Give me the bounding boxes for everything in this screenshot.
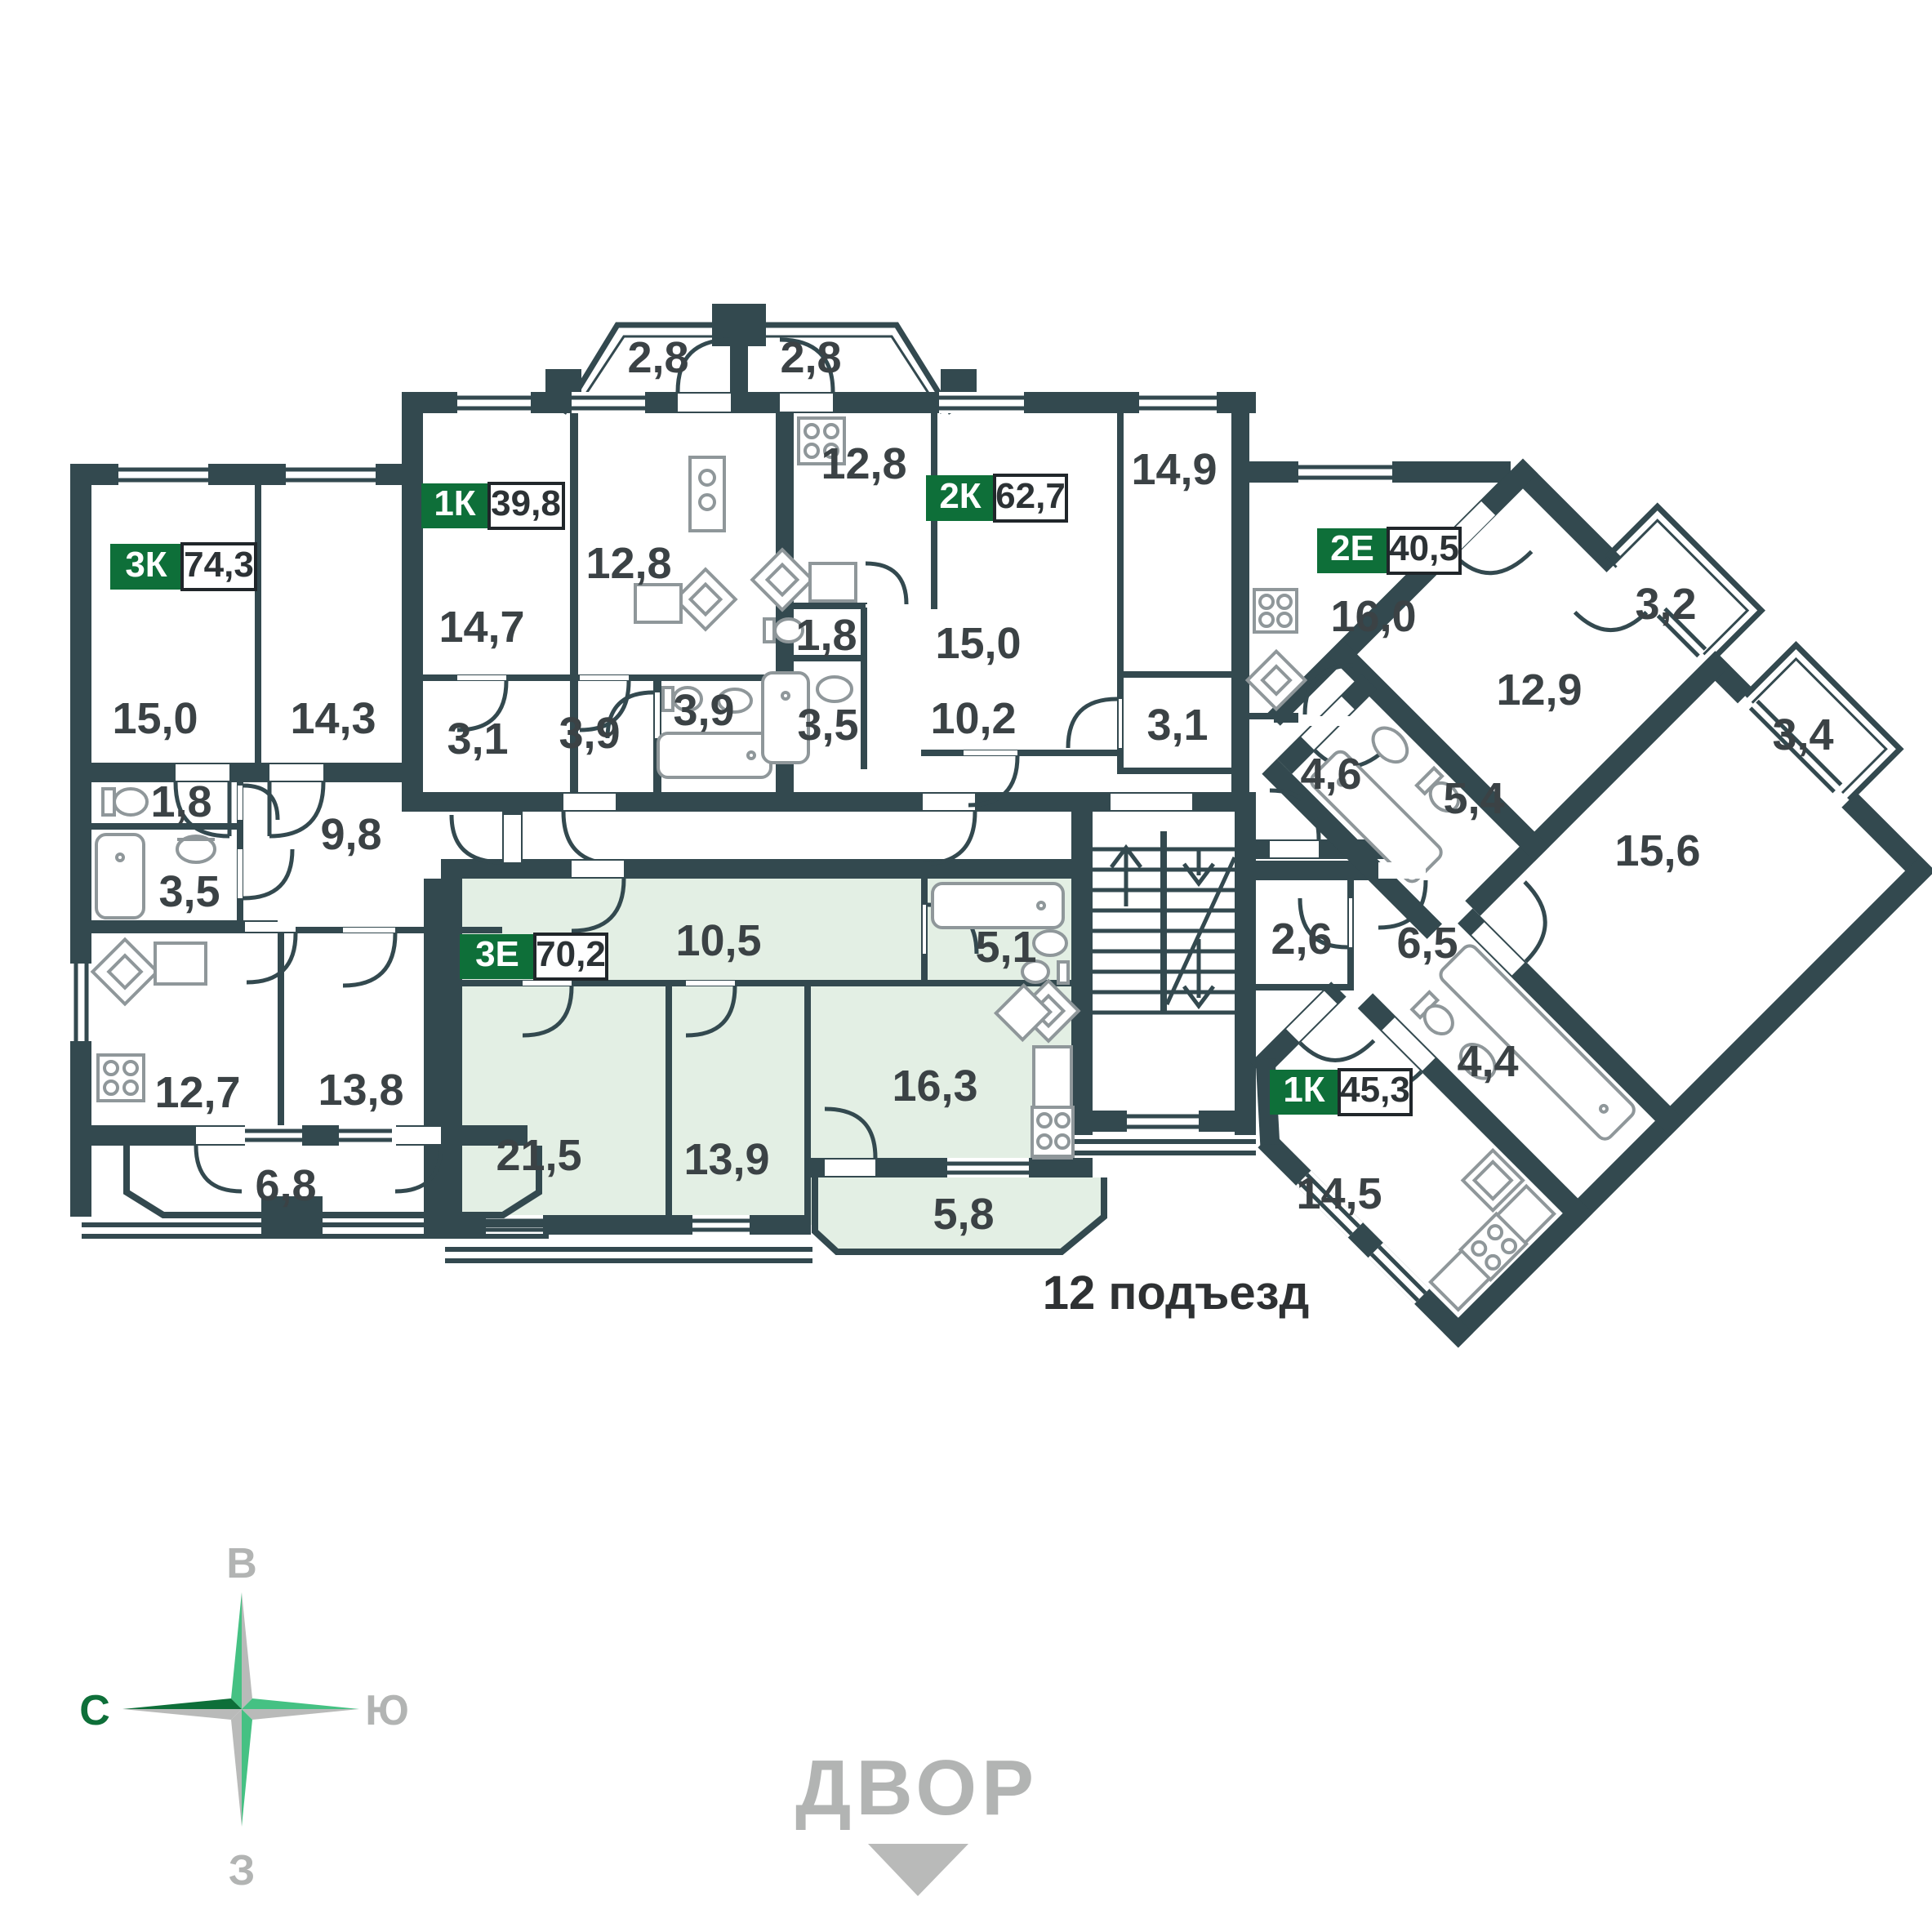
sink-icon [1034, 931, 1066, 955]
room-label: 1,8 [795, 611, 857, 660]
room-label: 5,8 [933, 1190, 994, 1239]
room-label: 3,5 [797, 701, 858, 750]
compass-east-label: В [226, 1540, 257, 1587]
room-label: 9,8 [320, 810, 381, 859]
apartment-area: 40,5 [1389, 528, 1459, 568]
room-label: 12,9 [1496, 666, 1582, 714]
room-label: 12,8 [585, 539, 671, 588]
room-label: 15,0 [935, 619, 1021, 668]
room-label: 5,1 [975, 923, 1036, 972]
room-label: 3,4 [1772, 710, 1833, 759]
apartment-code: 3К [125, 545, 167, 585]
room-label: 12,7 [154, 1068, 240, 1117]
room-label: 2,6 [1271, 915, 1332, 964]
apartment-code: 3Е [475, 934, 519, 974]
apartment-area: 39,8 [491, 483, 561, 523]
courtyard: ДВОР [795, 1744, 1039, 1896]
room-label: 3,9 [559, 709, 620, 758]
apartment-badge-2k[interactable]: 2К 62,7 [926, 475, 1066, 521]
room-label: 21,5 [496, 1131, 581, 1180]
stove-icon [1032, 1107, 1073, 1156]
room-label: 14,5 [1296, 1169, 1382, 1218]
compass-rose: В С Ю З [79, 1540, 409, 1894]
sink-icon [817, 677, 852, 701]
room-label: 5,4 [1443, 774, 1504, 823]
apartment-area: 45,3 [1340, 1070, 1410, 1110]
room-label: 16,0 [1330, 592, 1416, 641]
stove-icon [1254, 590, 1297, 632]
stairs-up-arrow [1111, 848, 1141, 906]
apartment-badge-3k[interactable]: 3К 74,3 [110, 544, 256, 590]
apartment-code: 2К [939, 476, 981, 516]
room-label: 6,8 [255, 1161, 316, 1210]
compass-north-label: С [79, 1687, 110, 1734]
floor-plan-canvas: 3К 74,3 1К 39,8 2К 62,7 2Е 40,5 3Е 70,2 … [0, 0, 1932, 1932]
room-label: 6,5 [1396, 919, 1458, 968]
room-label: 14,9 [1131, 445, 1217, 494]
stove-icon [690, 457, 724, 531]
apartment-area: 70,2 [536, 934, 606, 974]
apartment-code: 1К [1283, 1070, 1324, 1110]
room-label: 3,9 [673, 686, 734, 735]
room-label: 4,6 [1300, 750, 1361, 799]
staircase [1093, 831, 1235, 1013]
room-label: 16,3 [892, 1062, 977, 1111]
sink-icon [177, 836, 215, 862]
room-label: 15,0 [112, 694, 198, 743]
courtyard-arrow-icon [868, 1844, 968, 1896]
apartment-area: 74,3 [184, 545, 254, 585]
bathtub-icon [96, 835, 144, 918]
stairs-down-arrow [1184, 849, 1213, 884]
apartment-code: 1К [434, 483, 475, 523]
room-label: 3,5 [158, 867, 220, 916]
room-label: 13,8 [318, 1066, 403, 1115]
apartment-badge-1k-39[interactable]: 1К 39,8 [421, 483, 563, 528]
room-label: 3,1 [1146, 701, 1208, 750]
apartment-badge-3e[interactable]: 3Е 70,2 [460, 934, 607, 979]
stove-icon [98, 1055, 144, 1101]
diagonal-wing [1046, 416, 1932, 1348]
compass-south-label: Ю [365, 1687, 409, 1734]
bathtub-icon [658, 733, 771, 777]
entrance-label: 12 подъезд [1043, 1266, 1310, 1320]
room-label: 1,8 [150, 777, 211, 826]
room-label: 10,5 [675, 916, 761, 965]
kitchen-sink-icon [92, 939, 206, 1004]
room-label: 2,8 [780, 333, 841, 382]
apartment-area: 62,7 [995, 476, 1066, 516]
room-label: 10,2 [930, 694, 1016, 743]
courtyard-label: ДВОР [795, 1744, 1039, 1832]
room-label: 15,6 [1614, 826, 1700, 875]
room-label: 4,4 [1457, 1037, 1518, 1086]
toilet-icon [1412, 992, 1459, 1039]
compass-west-label: З [229, 1847, 256, 1894]
kitchen-sink-icon [752, 550, 856, 610]
bathtub-icon [933, 884, 1063, 928]
room-label: 13,9 [683, 1135, 769, 1184]
room-label: 14,7 [438, 603, 524, 652]
floor-plan-page: 3К 74,3 1К 39,8 2К 62,7 2Е 40,5 3Е 70,2 … [0, 0, 1932, 1932]
toilet-icon [103, 789, 147, 815]
apartment-badge-2e[interactable]: 2Е 40,5 [1317, 528, 1460, 573]
apartment-code: 2Е [1330, 528, 1374, 568]
room-label: 3,2 [1635, 580, 1696, 629]
apartment-badge-1k-45[interactable]: 1К 45,3 [1270, 1070, 1411, 1115]
room-label: 2,8 [627, 333, 688, 382]
room-label: 14,3 [290, 694, 376, 743]
room-label: 12,8 [821, 439, 906, 488]
room-label: 3,1 [447, 714, 508, 763]
